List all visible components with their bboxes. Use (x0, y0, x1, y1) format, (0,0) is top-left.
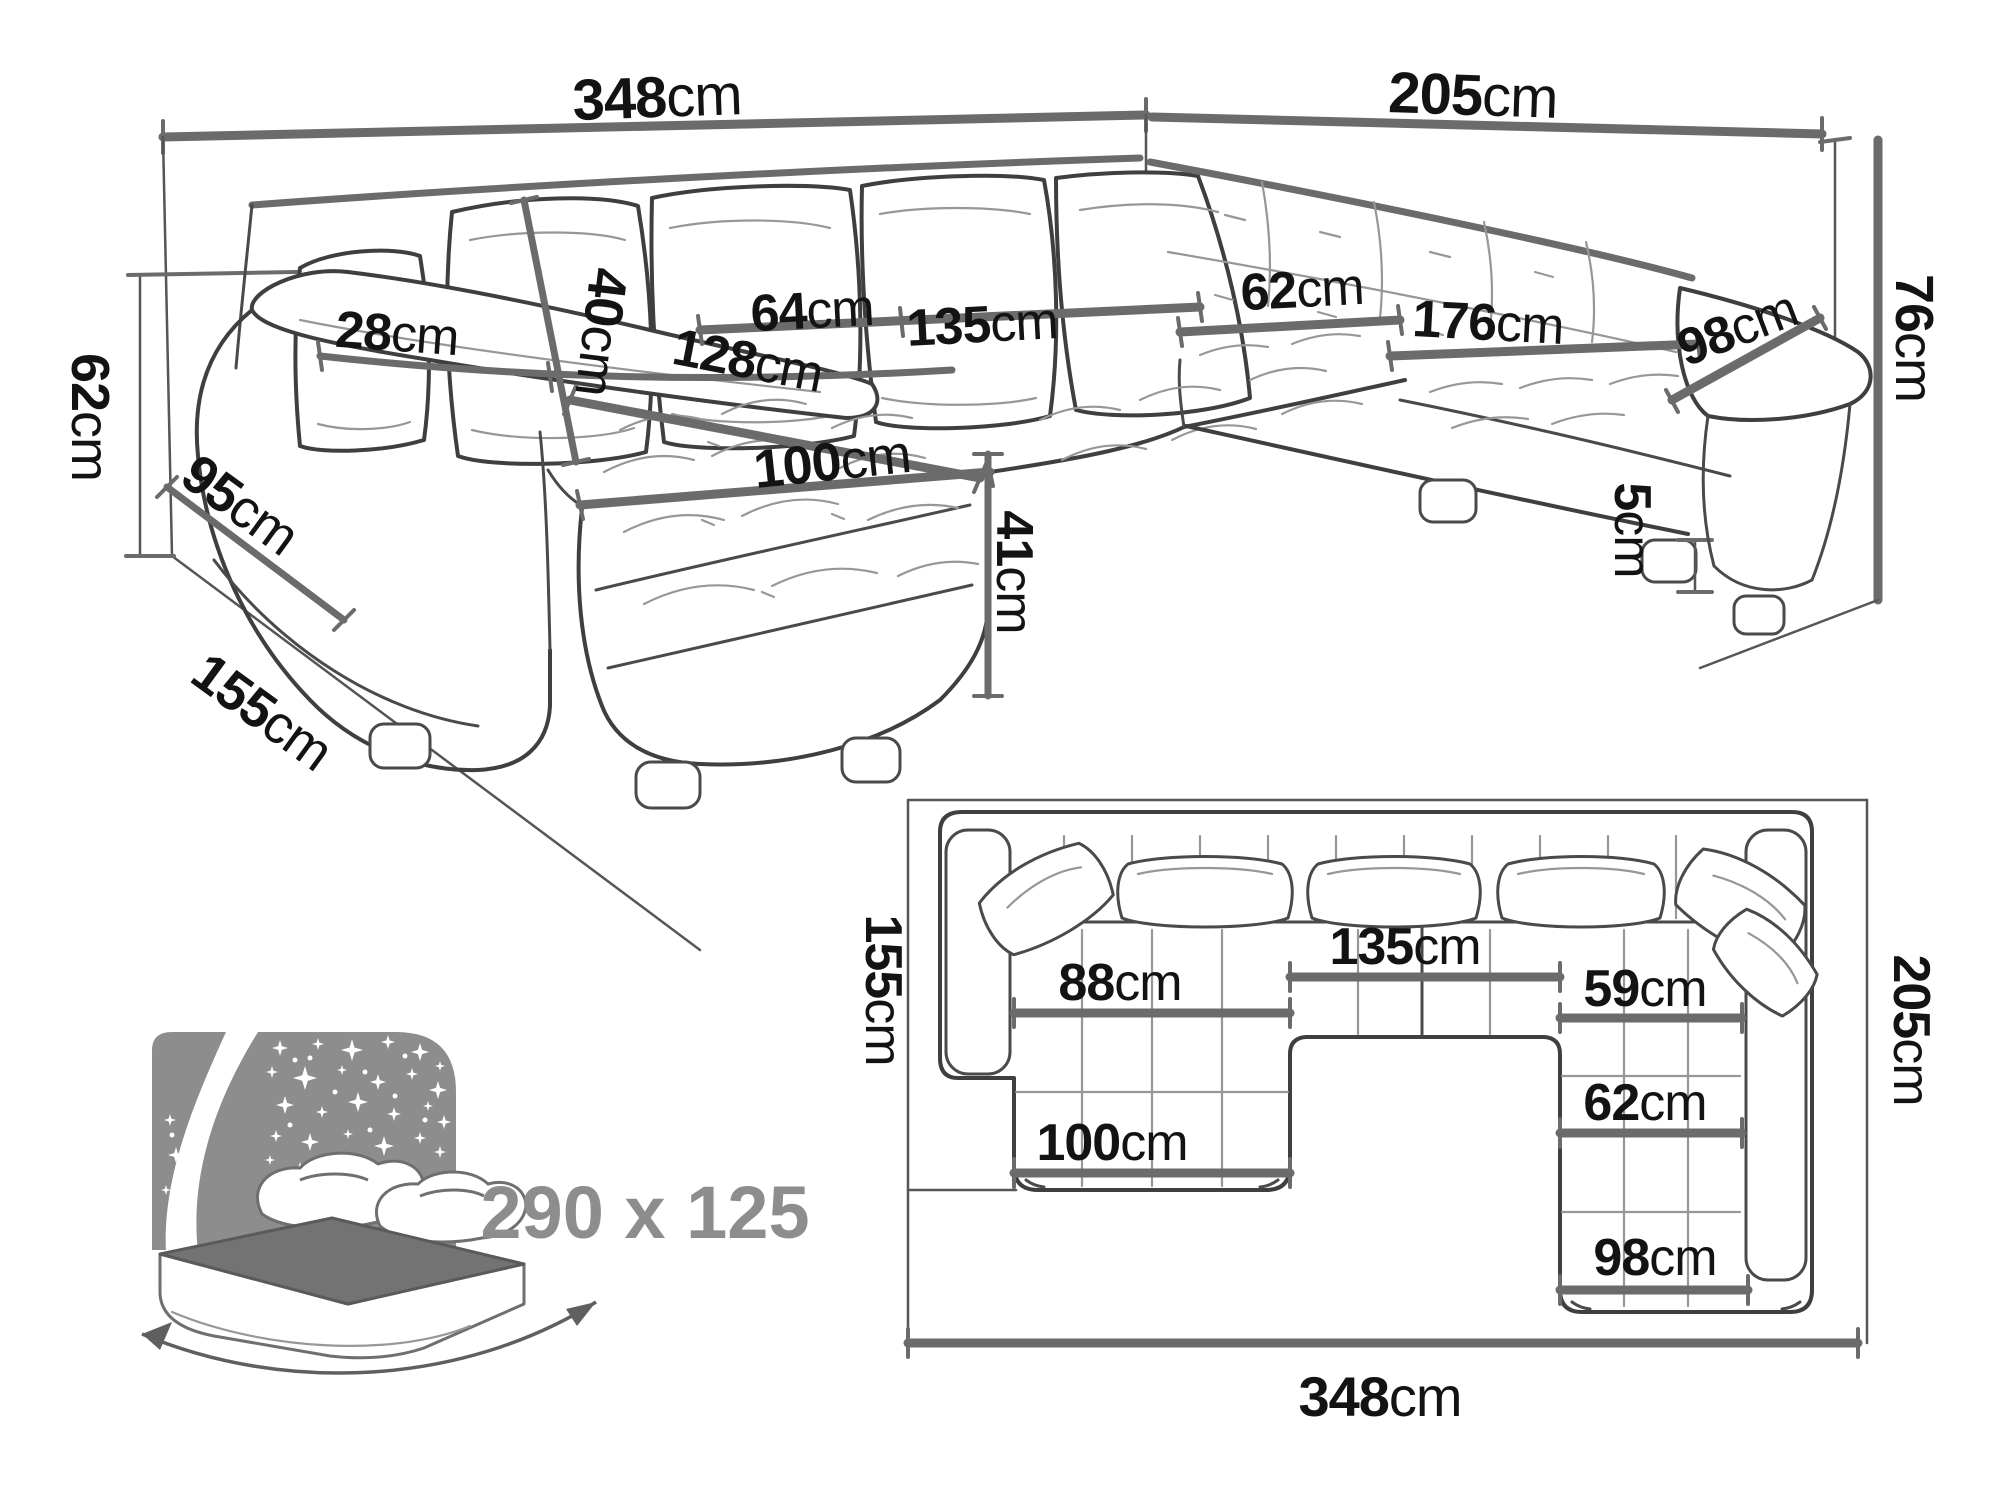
plan-dim-chaise-front-width: 100cm (1036, 1114, 1187, 1172)
sleeping-function-icon: 290 x 125 (142, 1032, 810, 1373)
sofa-dimension-diagram: 348cm 205cm 62cm 95cm 155cm 28cm 40cm 64… (0, 0, 2000, 1500)
dim-corner-seat-depth: 62cm (1239, 258, 1365, 322)
dim-seat-height: 41cm (985, 510, 1043, 633)
dim-seat-depth-left: 64cm (749, 279, 875, 343)
dim-seat-length-right: 176cm (1411, 290, 1565, 356)
plan-view: 155cm 88cm 135cm 59cm 62cm 100cm 98cm 20… (854, 800, 1940, 1428)
dim-seat-width-middle: 135cm (905, 292, 1059, 358)
bed-size-label: 290 x 125 (480, 1171, 809, 1254)
plan-dim-right-depth-total: 205cm (1882, 954, 1940, 1105)
dim-back-width: 348cm (571, 62, 742, 133)
plan-dim-middle-width: 135cm (1329, 918, 1480, 976)
plan-dim-chaise-back-width: 88cm (1058, 954, 1181, 1012)
dim-armrest-width: 28cm (333, 301, 460, 367)
plan-dim-right-end-width: 98cm (1593, 1229, 1716, 1287)
plan-dim-total-width: 348cm (1298, 1365, 1461, 1428)
dim-armrest-height: 62cm (60, 353, 120, 481)
dim-armrest-length: 95cm (171, 443, 310, 567)
dim-leg-height: 5cm (1603, 482, 1661, 577)
dim-floor-depth: 155cm (181, 642, 343, 783)
plan-dim-chaise-depth-total: 155cm (854, 914, 912, 1065)
plan-dim-right-seat-upper: 59cm (1583, 960, 1706, 1018)
plan-dim-right-seat-mid: 62cm (1583, 1074, 1706, 1132)
dim-side-width: 205cm (1387, 60, 1558, 131)
dim-backrest-height: 76cm (1884, 274, 1944, 402)
diagram-canvas: 348cm 205cm 62cm 95cm 155cm 28cm 40cm 64… (0, 0, 2000, 1500)
